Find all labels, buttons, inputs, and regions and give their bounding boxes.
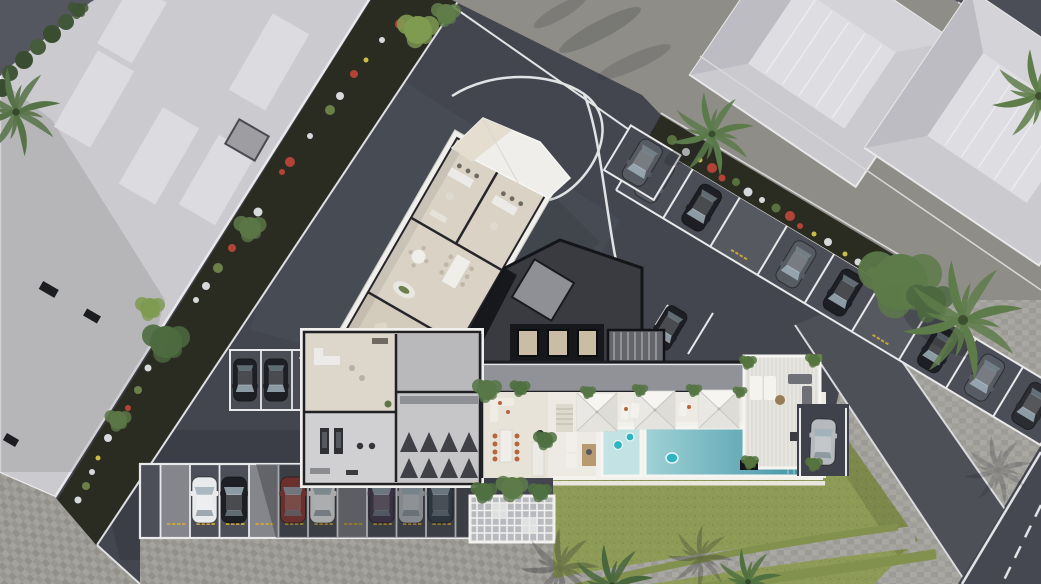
site-plan-canvas xyxy=(0,0,1041,584)
kids-pool xyxy=(602,428,641,476)
terrace-steps xyxy=(556,404,573,432)
pool-umbrellas xyxy=(577,390,739,431)
stairwell xyxy=(608,330,664,362)
car xyxy=(220,477,248,523)
umbrella xyxy=(699,390,739,428)
umbrella xyxy=(577,393,617,431)
car xyxy=(232,359,257,401)
car xyxy=(191,477,219,523)
parking-poolside xyxy=(797,404,849,476)
aerial-render xyxy=(0,0,1041,584)
amenity-wing xyxy=(302,330,482,486)
elevator-door xyxy=(578,330,597,356)
elevator-door xyxy=(548,330,568,356)
car xyxy=(263,359,288,401)
umbrella xyxy=(635,391,675,429)
elevator-door xyxy=(518,330,538,356)
